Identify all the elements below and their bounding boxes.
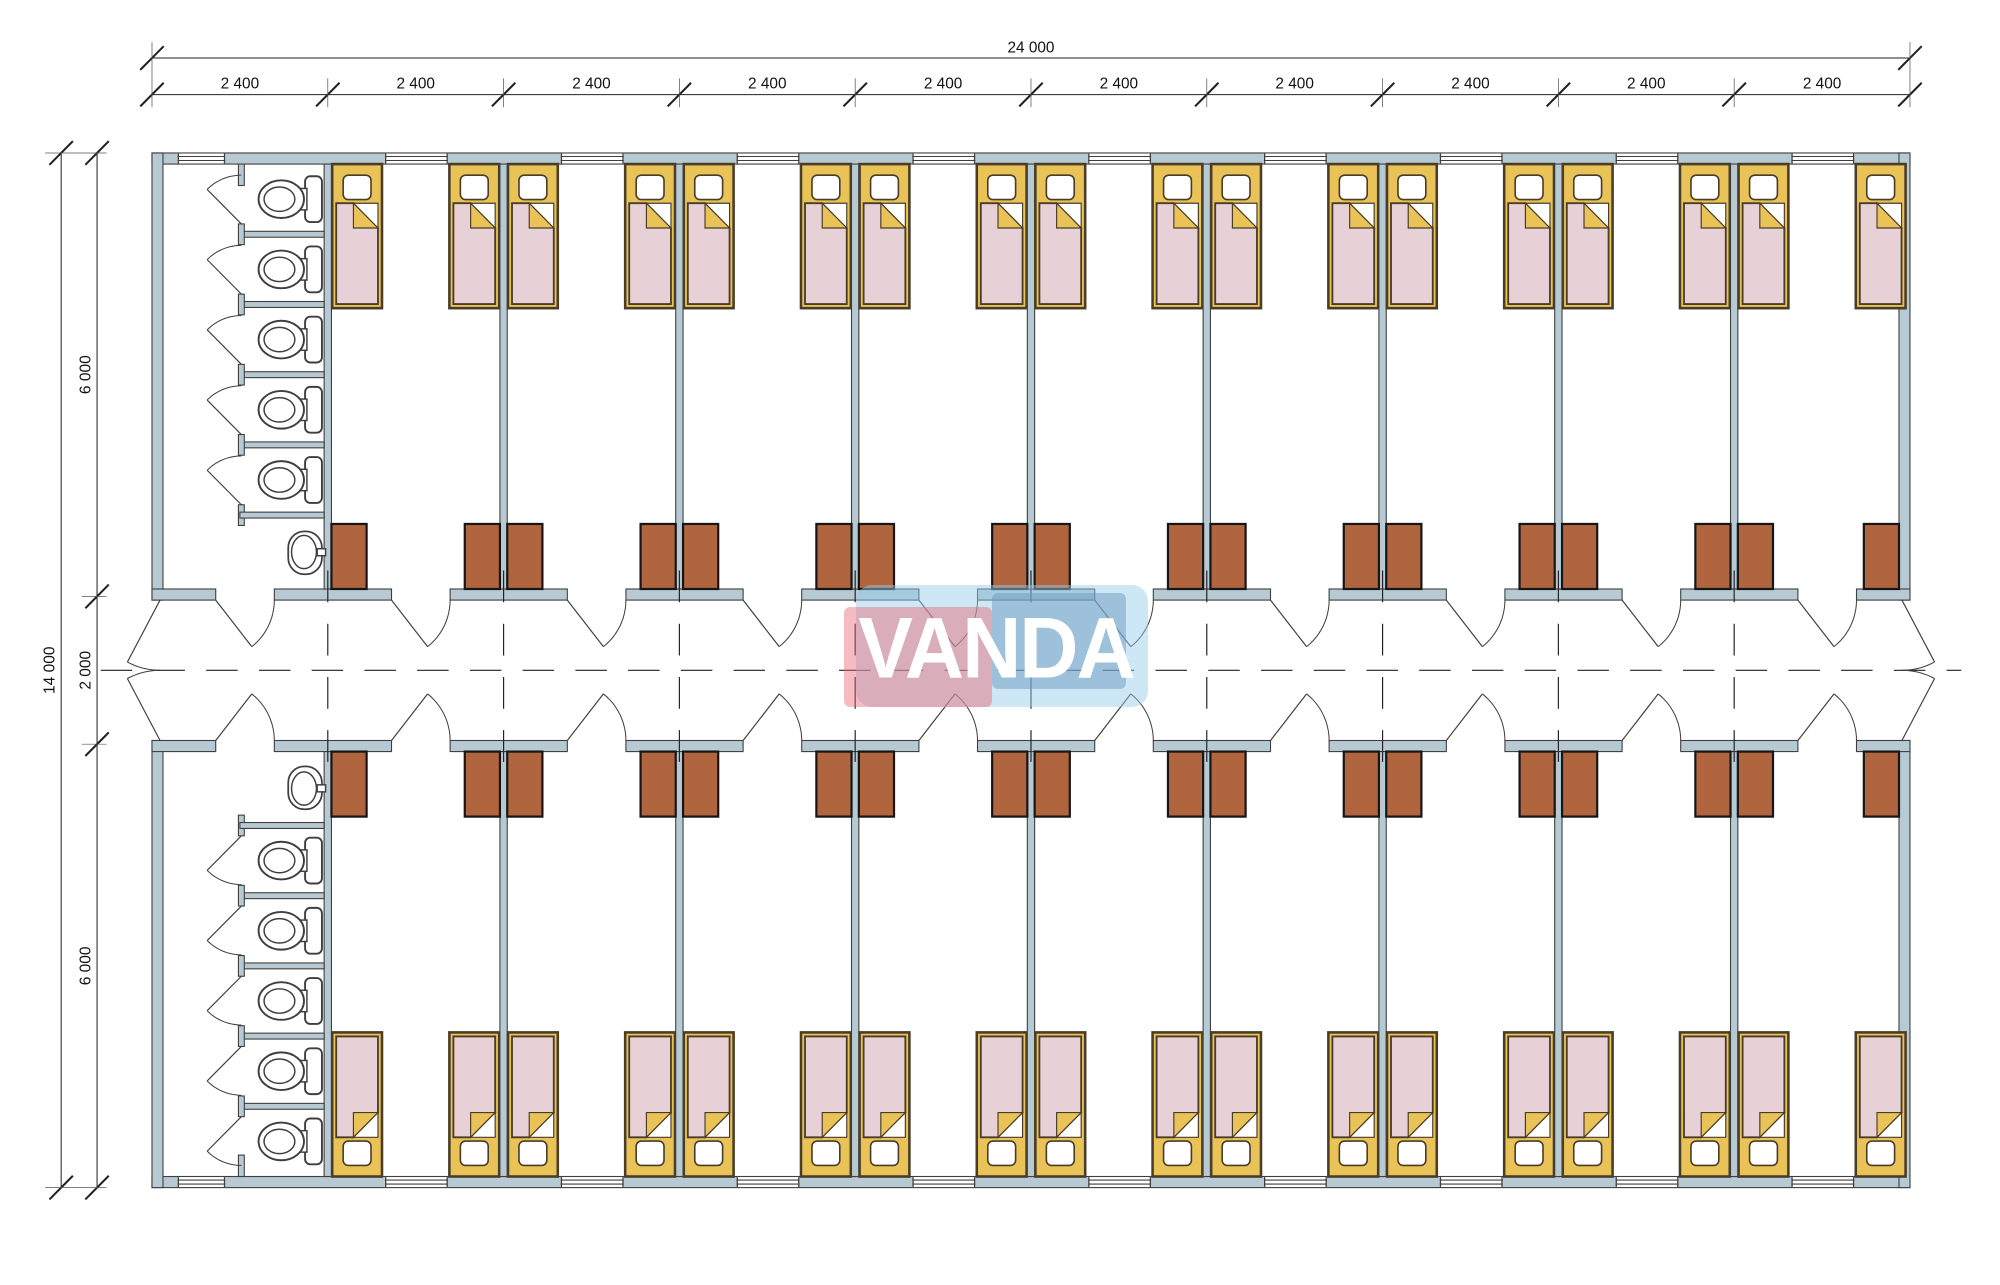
stall-door-leaf xyxy=(207,400,241,434)
stall-door-swing-arc xyxy=(207,175,241,189)
entrance-door-leaf xyxy=(127,679,160,741)
dim-label-bay-width: 2 400 xyxy=(572,76,610,93)
dim-label-bay-width: 2 400 xyxy=(221,76,259,93)
corridor-wall xyxy=(1329,740,1446,751)
dim-label-total-depth: 14 000 xyxy=(42,647,59,694)
locker xyxy=(1344,524,1379,589)
bed-pillow xyxy=(695,175,723,199)
toilet-bowl xyxy=(259,1123,304,1161)
locker xyxy=(641,752,676,817)
room-door-swing-arc xyxy=(252,600,274,647)
room-door-leaf xyxy=(1622,600,1658,647)
locker xyxy=(859,524,894,589)
bed-pillow xyxy=(1398,1141,1426,1165)
room-door-leaf xyxy=(743,600,779,647)
window-opening xyxy=(1440,154,1503,164)
stall-door-swing-arc xyxy=(207,245,241,259)
locker xyxy=(1386,524,1421,589)
corridor-wall xyxy=(450,740,567,751)
bed-pillow xyxy=(1867,1141,1895,1165)
stall-door-leaf xyxy=(207,836,241,870)
stall-partition xyxy=(240,893,324,899)
window-opening xyxy=(385,1177,448,1187)
bed-pillow xyxy=(1691,1141,1719,1165)
window-opening xyxy=(912,154,975,164)
stall-door-leaf xyxy=(207,1046,241,1080)
stall-door-swing-arc xyxy=(207,386,241,400)
bed-pillow xyxy=(1867,175,1895,199)
bed-pillow xyxy=(1164,1141,1192,1165)
toilet-bowl xyxy=(259,842,304,880)
toilet-bowl xyxy=(259,391,304,429)
stall-door-swing-arc xyxy=(207,941,241,955)
bed-pillow xyxy=(871,175,899,199)
room-door-swing-arc xyxy=(603,694,625,741)
room-door-swing-arc xyxy=(1658,694,1680,741)
bed-pillow xyxy=(1691,175,1719,199)
locker xyxy=(331,524,366,589)
corridor-wall xyxy=(626,740,743,751)
bed-pillow xyxy=(1750,175,1778,199)
locker xyxy=(507,524,542,589)
corridor-wall xyxy=(1153,740,1270,751)
window-opening xyxy=(1791,1177,1854,1187)
locker xyxy=(992,524,1027,589)
bed-pillow xyxy=(519,175,547,199)
stall-door-leaf xyxy=(207,1117,241,1151)
bed-pillow xyxy=(343,175,371,199)
stall-door-leaf xyxy=(207,976,241,1010)
locker xyxy=(1035,752,1070,817)
toilet-bowl xyxy=(259,461,304,499)
sink-tap xyxy=(317,785,325,792)
stall-front-stub xyxy=(238,1096,244,1117)
window-opening xyxy=(1440,1177,1503,1187)
stall-partition xyxy=(240,372,324,378)
bed-pillow xyxy=(519,1141,547,1165)
window-opening xyxy=(1791,154,1854,164)
dim-label-bay-width: 2 400 xyxy=(1451,76,1489,93)
room-door-swing-arc xyxy=(603,600,625,647)
stall-door-swing-arc xyxy=(207,870,241,884)
stall-partition xyxy=(240,512,324,518)
locker xyxy=(816,524,851,589)
dim-label-bay-width: 2 400 xyxy=(1275,76,1313,93)
corridor-wall xyxy=(1681,589,1798,600)
corridor-wall xyxy=(626,589,743,600)
bed-pillow xyxy=(1339,175,1367,199)
locker xyxy=(1864,752,1899,817)
locker xyxy=(992,752,1027,817)
bed-pillow xyxy=(988,1141,1016,1165)
locker xyxy=(331,752,366,817)
entrance-door-swing-arc xyxy=(127,670,160,678)
corridor-wall xyxy=(1681,740,1798,751)
room-door-leaf xyxy=(1095,600,1131,647)
bed-pillow xyxy=(460,1141,488,1165)
toilet-bowl xyxy=(259,180,304,218)
bed-pillow xyxy=(1398,175,1426,199)
bed-pillow xyxy=(636,175,664,199)
room-door-leaf xyxy=(1798,600,1834,647)
stall-partition xyxy=(240,963,324,969)
room-door-swing-arc xyxy=(779,600,801,647)
toilet-bowl xyxy=(259,1052,304,1090)
window-opening xyxy=(737,154,800,164)
corridor-wall xyxy=(1505,589,1622,600)
corridor-wall xyxy=(1857,589,1910,600)
room-door-leaf xyxy=(743,694,779,741)
stall-door-leaf xyxy=(207,470,241,504)
bed-pillow xyxy=(1164,175,1192,199)
room-door-leaf xyxy=(1095,694,1131,741)
corridor-wall xyxy=(1153,589,1270,600)
locker xyxy=(1344,752,1379,817)
stall-door-swing-arc xyxy=(207,1151,241,1165)
stall-front-stub xyxy=(238,364,244,385)
sink-tap xyxy=(317,549,325,556)
stall-partition xyxy=(240,231,324,237)
locker xyxy=(507,752,542,817)
stall-partition xyxy=(240,823,324,829)
floor-plan-page: 24 0002 4002 4002 4002 4002 4002 4002 40… xyxy=(0,0,2000,1285)
corridor-wall xyxy=(274,740,391,751)
stall-front-stub xyxy=(238,294,244,315)
stall-door-swing-arc xyxy=(207,1081,241,1095)
corridor-wall xyxy=(1329,589,1446,600)
room-door-leaf xyxy=(1446,600,1482,647)
locker xyxy=(683,752,718,817)
entrance-door-leaf xyxy=(1902,600,1935,662)
exterior-wall-left xyxy=(152,153,163,600)
room-door-leaf xyxy=(919,694,955,741)
locker xyxy=(1695,524,1730,589)
room-door-swing-arc xyxy=(252,694,274,741)
corridor-wall xyxy=(152,589,216,600)
bed-pillow xyxy=(1574,175,1602,199)
window-opening xyxy=(1088,154,1151,164)
stall-partition xyxy=(240,442,324,448)
corridor-wall xyxy=(978,740,1095,751)
locker xyxy=(465,752,500,817)
dim-label-bay-width: 2 400 xyxy=(1100,76,1138,93)
stall-door-swing-arc xyxy=(207,1011,241,1025)
room-door-leaf xyxy=(1798,694,1834,741)
locker xyxy=(641,524,676,589)
toilet-bowl xyxy=(259,321,304,359)
locker xyxy=(1168,752,1203,817)
corridor-wall xyxy=(802,589,919,600)
dim-label-total-width: 24 000 xyxy=(1007,39,1054,56)
toilet-bowl xyxy=(259,982,304,1020)
corridor-wall xyxy=(1505,740,1622,751)
stall-front-stub xyxy=(238,885,244,906)
room-door-leaf xyxy=(1271,600,1307,647)
bed-pillow xyxy=(1222,175,1250,199)
entrance-door-leaf xyxy=(127,600,160,662)
locker xyxy=(1386,752,1421,817)
locker xyxy=(1864,524,1899,589)
stall-partition xyxy=(240,1033,324,1039)
stall-door-leaf xyxy=(207,906,241,940)
room-door-leaf xyxy=(1446,694,1482,741)
locker xyxy=(1562,752,1597,817)
room-door-swing-arc xyxy=(779,694,801,741)
room-door-swing-arc xyxy=(1482,600,1504,647)
room-door-swing-arc xyxy=(1658,600,1680,647)
entrance-door-swing-arc xyxy=(127,662,160,670)
entrance-door-swing-arc xyxy=(1902,662,1935,670)
room-door-leaf xyxy=(567,600,603,647)
bed-pillow xyxy=(871,1141,899,1165)
stall-door-leaf xyxy=(207,260,241,294)
locker xyxy=(1520,524,1555,589)
bed-pillow xyxy=(636,1141,664,1165)
window-opening xyxy=(737,1177,800,1187)
room-door-swing-arc xyxy=(1307,694,1329,741)
window-opening xyxy=(1616,1177,1679,1187)
room-door-swing-arc xyxy=(1482,694,1504,741)
corridor-wall xyxy=(152,740,216,751)
corridor-wall xyxy=(274,589,391,600)
room-door-leaf xyxy=(1271,694,1307,741)
room-door-leaf xyxy=(1622,694,1658,741)
dim-label-depth-segment: 2 000 xyxy=(78,651,95,690)
window-opening xyxy=(385,154,448,164)
room-door-leaf xyxy=(392,694,428,741)
dim-label-bay-width: 2 400 xyxy=(396,76,434,93)
room-door-swing-arc xyxy=(1834,694,1856,741)
bottom-band xyxy=(152,694,1910,1188)
locker xyxy=(1035,524,1070,589)
locker xyxy=(1562,524,1597,589)
dim-label-depth-segment: 6 000 xyxy=(78,355,95,394)
room-door-swing-arc xyxy=(1834,600,1856,647)
locker xyxy=(859,752,894,817)
corridor-wall xyxy=(978,589,1095,600)
locker xyxy=(1520,752,1555,817)
room-door-leaf xyxy=(392,600,428,647)
window-opening xyxy=(1264,154,1327,164)
corridor-wall xyxy=(802,740,919,751)
stall-door-leaf xyxy=(207,189,241,223)
entrance-door-swing-arc xyxy=(1902,670,1935,678)
room-door-swing-arc xyxy=(428,600,450,647)
bed-pillow xyxy=(812,1141,840,1165)
locker xyxy=(1210,752,1245,817)
stall-door-swing-arc xyxy=(207,456,241,470)
locker xyxy=(1210,524,1245,589)
floor-plan-drawing: 24 0002 4002 4002 4002 4002 4002 4002 40… xyxy=(0,0,2000,1285)
bed-pillow xyxy=(1046,175,1074,199)
stall-front-stub xyxy=(238,1026,244,1047)
room-door-leaf xyxy=(919,600,955,647)
dim-label-bay-width: 2 400 xyxy=(924,76,962,93)
window-opening xyxy=(1616,154,1679,164)
window-opening xyxy=(178,154,226,164)
window-opening xyxy=(561,1177,624,1187)
bed-pillow xyxy=(1339,1141,1367,1165)
window-opening xyxy=(1264,1177,1327,1187)
stall-partition xyxy=(240,1103,324,1109)
locker xyxy=(1168,524,1203,589)
dim-label-depth-segment: 6 000 xyxy=(78,946,95,985)
room-door-swing-arc xyxy=(955,694,977,741)
dim-label-bay-width: 2 400 xyxy=(1803,76,1841,93)
stall-front-stub xyxy=(238,435,244,456)
bed-pillow xyxy=(1574,1141,1602,1165)
window-opening xyxy=(561,154,624,164)
room-door-leaf xyxy=(216,600,252,647)
room-door-leaf xyxy=(567,694,603,741)
window-opening xyxy=(178,1177,226,1187)
locker xyxy=(1738,752,1773,817)
stall-door-leaf xyxy=(207,330,241,364)
room-door-swing-arc xyxy=(955,600,977,647)
room-door-swing-arc xyxy=(1307,600,1329,647)
locker xyxy=(465,524,500,589)
dim-label-bay-width: 2 400 xyxy=(748,76,786,93)
exterior-wall-left xyxy=(152,740,163,1187)
bed-pillow xyxy=(695,1141,723,1165)
entrance-door-leaf xyxy=(1902,679,1935,741)
stall-partition xyxy=(240,302,324,308)
room-door-swing-arc xyxy=(428,694,450,741)
window-opening xyxy=(1088,1177,1151,1187)
toilet-bowl xyxy=(259,251,304,289)
bed-pillow xyxy=(343,1141,371,1165)
stall-front-stub xyxy=(238,224,244,245)
room-door-leaf xyxy=(216,694,252,741)
stall-front-stub xyxy=(238,956,244,977)
bed-pillow xyxy=(1046,1141,1074,1165)
dim-label-bay-width: 2 400 xyxy=(1627,76,1665,93)
stall-door-swing-arc xyxy=(207,316,241,330)
toilet-bowl xyxy=(259,912,304,950)
locker xyxy=(683,524,718,589)
bed-pillow xyxy=(988,175,1016,199)
window-opening xyxy=(912,1177,975,1187)
bed-pillow xyxy=(812,175,840,199)
room-door-swing-arc xyxy=(1131,600,1153,647)
room-door-swing-arc xyxy=(1131,694,1153,741)
locker xyxy=(816,752,851,817)
locker xyxy=(1738,524,1773,589)
corridor-wall xyxy=(450,589,567,600)
bed-pillow xyxy=(1750,1141,1778,1165)
bed-pillow xyxy=(1515,1141,1543,1165)
bed-pillow xyxy=(460,175,488,199)
locker xyxy=(1695,752,1730,817)
bed-pillow xyxy=(1515,175,1543,199)
bed-pillow xyxy=(1222,1141,1250,1165)
corridor-wall xyxy=(1857,740,1910,751)
